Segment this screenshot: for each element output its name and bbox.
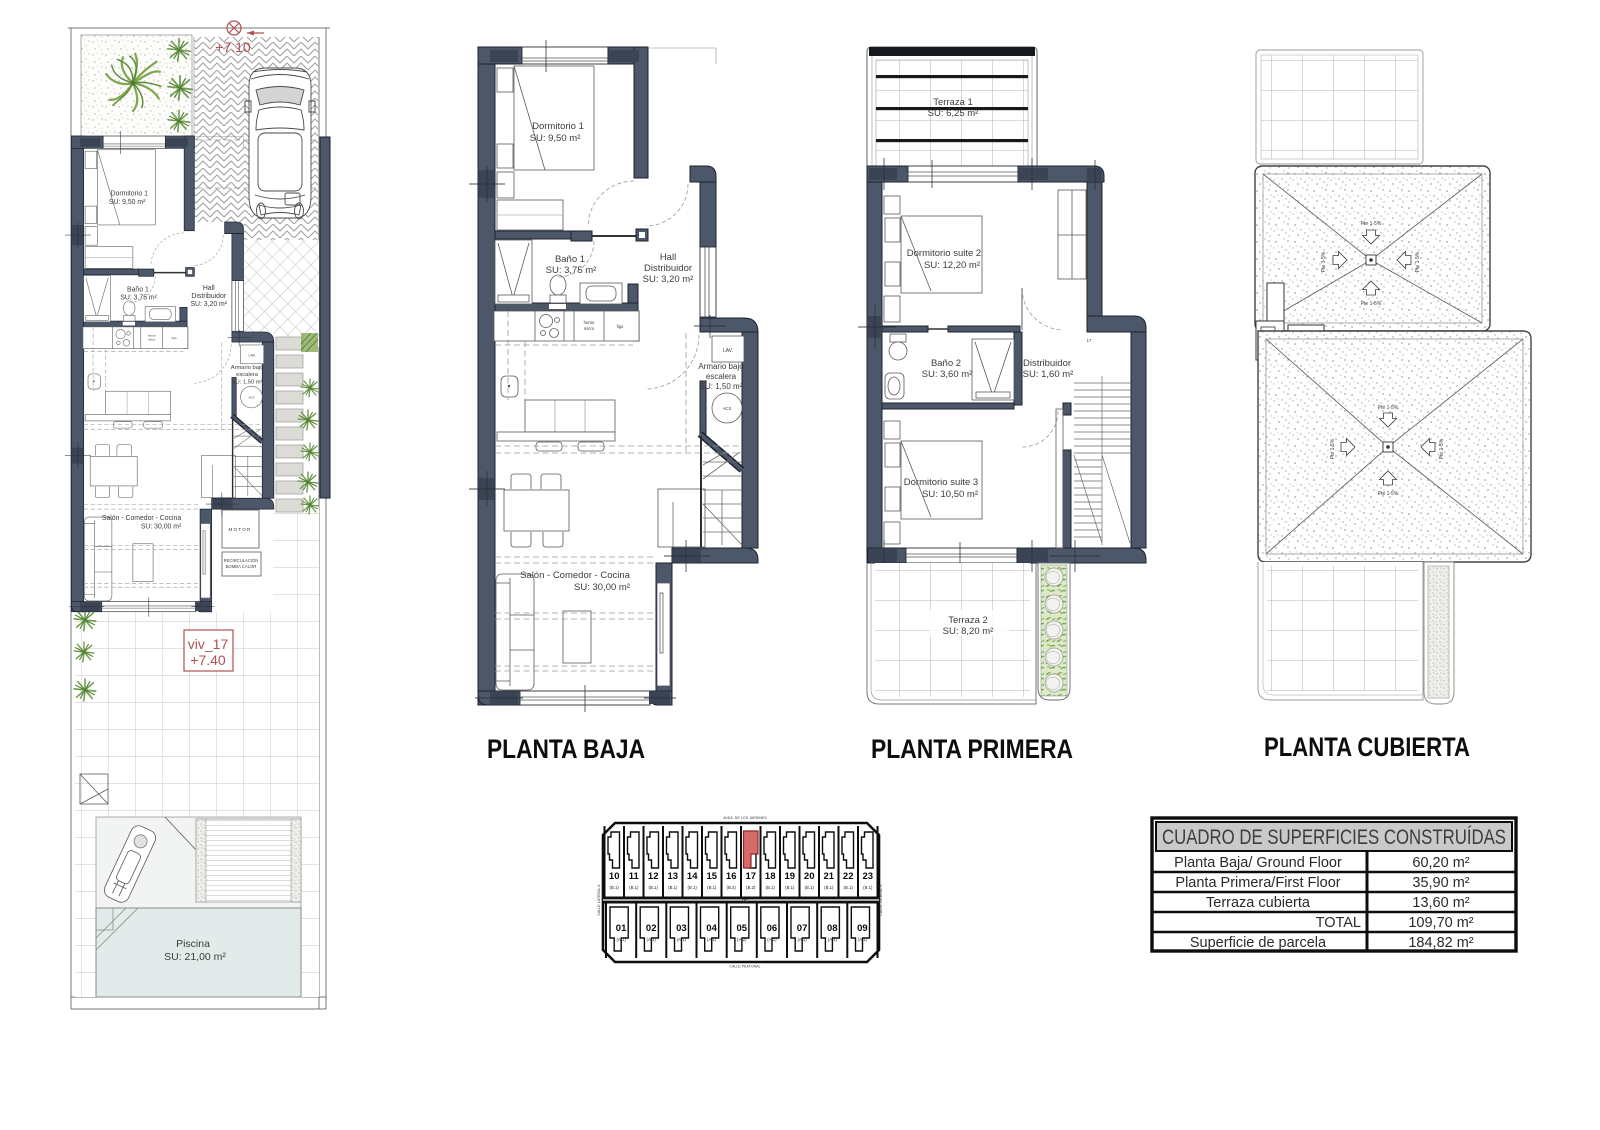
svg-text:12: 12 — [648, 871, 659, 882]
svg-text:Pte 3-5%: Pte 3-5% — [1321, 251, 1327, 272]
svg-text:escalera: escalera — [706, 372, 737, 381]
svg-text:SU: 10,50 m²: SU: 10,50 m² — [922, 489, 978, 500]
svg-text:13,60 m²: 13,60 m² — [1412, 895, 1469, 911]
svg-text:22: 22 — [843, 871, 854, 882]
svg-text:Distribuidor: Distribuidor — [1023, 358, 1071, 369]
svg-text:PLANTA PRIMERA: PLANTA PRIMERA — [871, 734, 1073, 764]
svg-text:04: 04 — [706, 923, 717, 934]
svg-text:SU: 9,50 m²: SU: 9,50 m² — [530, 133, 581, 144]
svg-text:PLANTA CUBIERTA: PLANTA CUBIERTA — [1264, 732, 1470, 762]
svg-text:+7.10: +7.10 — [215, 39, 251, 55]
svg-text:(A.2): (A.2) — [767, 937, 777, 942]
svg-text:Distribuidor: Distribuidor — [644, 263, 692, 274]
svg-text:Pte 1-5%: Pte 1-5% — [1439, 438, 1445, 459]
svg-text:184,82 m²: 184,82 m² — [1408, 935, 1473, 951]
svg-text:11: 11 — [629, 871, 640, 882]
svg-text:Dormitorio 1: Dormitorio 1 — [532, 121, 584, 132]
svg-text:21: 21 — [824, 871, 835, 882]
svg-text:(A.1): (A.1) — [858, 937, 868, 942]
svg-text:(A.1): (A.1) — [616, 937, 626, 942]
svg-text:horno: horno — [584, 320, 595, 325]
svg-text:Pte 1-5%: Pte 1-5% — [1361, 301, 1382, 307]
svg-text:07: 07 — [797, 923, 808, 934]
svg-text:CALLE PEATONAL: CALLE PEATONAL — [729, 965, 760, 969]
svg-text:SU: 3,20 m²: SU: 3,20 m² — [643, 274, 694, 285]
svg-text:17: 17 — [746, 871, 757, 882]
svg-text:SU: 3,75 m²: SU: 3,75 m² — [546, 265, 597, 276]
svg-text:SU: 12,20 m²: SU: 12,20 m² — [924, 260, 980, 271]
svg-text:(B.1): (B.1) — [668, 885, 678, 890]
svg-text:SU: 30,00 m²: SU: 30,00 m² — [574, 582, 630, 593]
svg-text:DC: DC — [742, 898, 749, 903]
svg-text:(B.1): (B.1) — [844, 885, 854, 890]
svg-text:(B.1): (B.1) — [610, 885, 620, 890]
svg-text:23: 23 — [863, 871, 874, 882]
svg-text:(A.1): (A.1) — [797, 937, 807, 942]
svg-text:viv_17: viv_17 — [188, 636, 229, 652]
svg-text:RECIRCULACIÓN: RECIRCULACIÓN — [224, 558, 259, 563]
svg-text:(B.1): (B.1) — [863, 885, 873, 890]
svg-text:Pte 1-5%: Pte 1-5% — [1378, 491, 1399, 497]
svg-text:BOMBA CALOR: BOMBA CALOR — [226, 564, 256, 569]
svg-text:SU: 1,60 m²: SU: 1,60 m² — [1023, 369, 1074, 380]
svg-text:Hall: Hall — [660, 252, 676, 263]
svg-text:17: 17 — [1087, 338, 1092, 343]
svg-text:Superficie de parcela: Superficie de parcela — [1190, 935, 1327, 951]
svg-text:(A.1): (A.1) — [647, 937, 657, 942]
svg-text:09: 09 — [857, 923, 868, 934]
svg-text:08: 08 — [827, 923, 838, 934]
svg-text:MOTOR: MOTOR — [228, 527, 251, 532]
svg-text:Piscina: Piscina — [176, 938, 210, 950]
svg-text:Terraza cubierta: Terraza cubierta — [1206, 895, 1311, 911]
svg-text:(B.1): (B.1) — [688, 885, 698, 890]
svg-text:15: 15 — [707, 871, 718, 882]
svg-text:16: 16 — [726, 871, 737, 882]
svg-text:PLANTA BAJA: PLANTA BAJA — [487, 734, 645, 764]
svg-text:109,70 m²: 109,70 m² — [1408, 915, 1473, 931]
svg-text:Planta Primera/First Floor: Planta Primera/First Floor — [1175, 875, 1340, 891]
svg-text:(A.1): (A.1) — [828, 937, 838, 942]
svg-text:Planta Baja/ Ground Floor: Planta Baja/ Ground Floor — [1174, 855, 1342, 871]
svg-text:(B.1): (B.1) — [649, 885, 659, 890]
svg-text:micro: micro — [584, 326, 595, 331]
svg-text:03: 03 — [676, 923, 687, 934]
svg-text:06: 06 — [767, 923, 778, 934]
svg-text:Dormitorio suite 3: Dormitorio suite 3 — [904, 477, 978, 488]
svg-text:20: 20 — [804, 871, 815, 882]
svg-text:02: 02 — [646, 923, 657, 934]
svg-text:13: 13 — [668, 871, 679, 882]
svg-text:(B.2): (B.2) — [727, 885, 737, 890]
svg-text:(B.1): (B.1) — [629, 885, 639, 890]
svg-text:Dormitorio suite 2: Dormitorio suite 2 — [907, 248, 981, 259]
svg-text:Pte 1-5%: Pte 1-5% — [1378, 405, 1399, 411]
svg-text:18: 18 — [765, 871, 776, 882]
svg-text:Armario bajo: Armario bajo — [698, 362, 744, 371]
svg-text:Pte 1-5%: Pte 1-5% — [1330, 438, 1336, 459]
svg-text:SU: 6,25 m²: SU: 6,25 m² — [928, 108, 979, 119]
svg-text:LAV.: LAV. — [723, 348, 733, 354]
svg-text:AVDA. DE LOS JARDINES: AVDA. DE LOS JARDINES — [723, 816, 767, 820]
svg-text:Salón - Comedor - Cocina: Salón - Comedor - Cocina — [520, 570, 631, 581]
svg-text:35,90 m²: 35,90 m² — [1412, 875, 1469, 891]
svg-text:10: 10 — [609, 871, 620, 882]
svg-text:+7.40: +7.40 — [190, 652, 226, 668]
svg-text:TOTAL: TOTAL — [1316, 915, 1361, 931]
svg-text:ACS: ACS — [723, 406, 732, 411]
svg-text:(B.1): (B.1) — [785, 885, 795, 890]
svg-text:Terraza 1: Terraza 1 — [933, 97, 973, 108]
svg-text:60,20 m²: 60,20 m² — [1412, 855, 1469, 871]
svg-text:SU: 8,20 m²: SU: 8,20 m² — [943, 626, 994, 637]
svg-text:SU: 21,00 m²: SU: 21,00 m² — [164, 951, 226, 963]
svg-text:(B.1): (B.1) — [824, 885, 834, 890]
svg-text:CALLE LATERAL A: CALLE LATERAL A — [597, 884, 601, 916]
svg-text:SU: 3,60 m²: SU: 3,60 m² — [922, 369, 973, 380]
svg-text:Pte 1-5%: Pte 1-5% — [1361, 221, 1382, 227]
svg-text:(A.2): (A.2) — [737, 937, 747, 942]
svg-text:14: 14 — [687, 871, 698, 882]
svg-text:Baño 1: Baño 1 — [555, 254, 585, 265]
svg-text:(A.1): (A.1) — [707, 937, 717, 942]
svg-text:(B.1): (B.1) — [707, 885, 717, 890]
svg-text:(B.2): (B.2) — [746, 885, 756, 890]
svg-text:(B.1): (B.1) — [766, 885, 776, 890]
svg-text:figo: figo — [617, 324, 624, 329]
svg-text:(A.1): (A.1) — [677, 937, 687, 942]
svg-text:05: 05 — [737, 923, 748, 934]
svg-text:Terraza 2: Terraza 2 — [948, 615, 988, 626]
svg-text:CALLE LATERAL B: CALLE LATERAL B — [879, 884, 883, 916]
svg-text:01: 01 — [616, 923, 627, 934]
svg-text:Baño 2: Baño 2 — [931, 358, 961, 369]
svg-text:(B.1): (B.1) — [805, 885, 815, 890]
svg-text:Pte 1-5%: Pte 1-5% — [1415, 251, 1421, 272]
svg-text:CUADRO DE SUPERFICIES CONSTRUÍ: CUADRO DE SUPERFICIES CONSTRUÍDAS — [1162, 826, 1506, 849]
svg-text:19: 19 — [785, 871, 796, 882]
svg-text:SU: 1,50 m²: SU: 1,50 m² — [700, 382, 743, 391]
